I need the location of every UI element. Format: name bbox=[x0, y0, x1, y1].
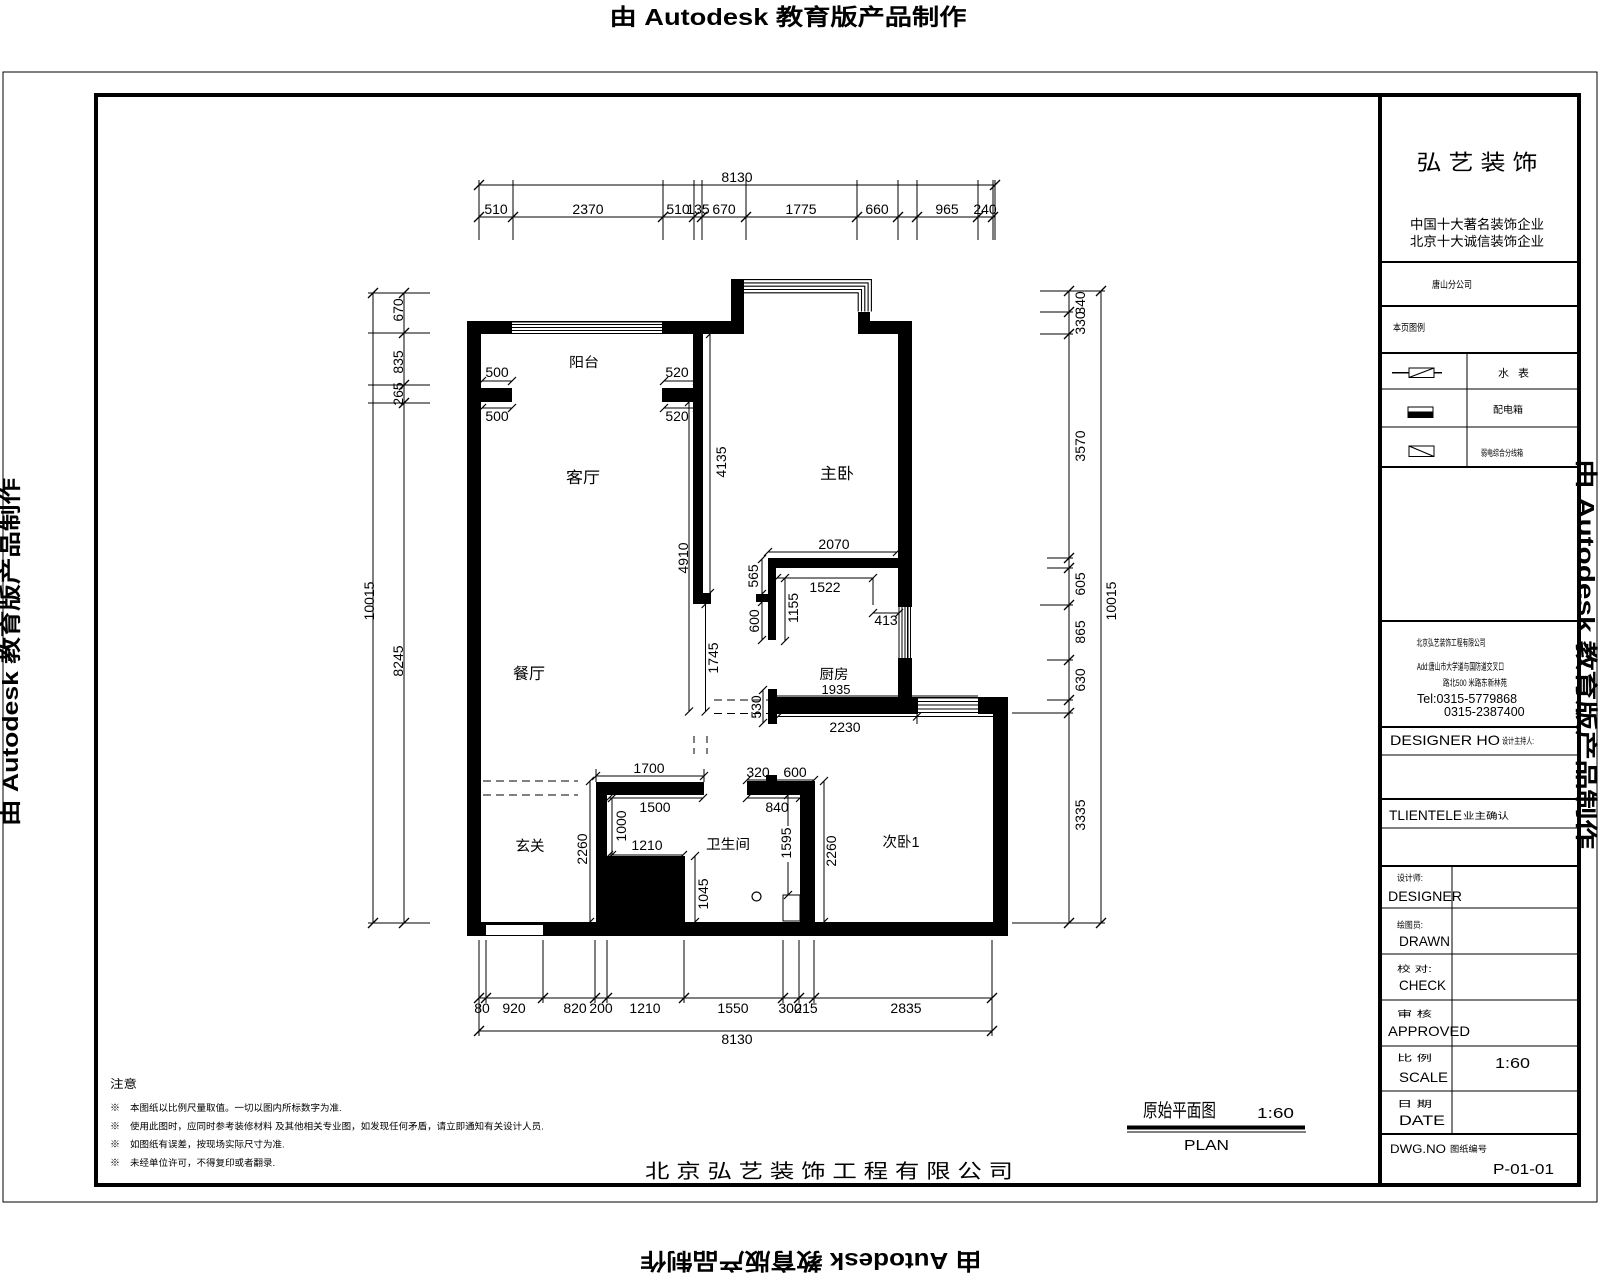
svg-text:413: 413 bbox=[874, 612, 898, 628]
svg-text:※: ※ bbox=[110, 1154, 120, 1169]
svg-text:配电箱: 配电箱 bbox=[1493, 401, 1523, 416]
svg-text:DATE: DATE bbox=[1399, 1112, 1445, 1128]
svg-text:135: 135 bbox=[686, 201, 710, 217]
svg-text:CHECK: CHECK bbox=[1399, 977, 1447, 993]
svg-text:520: 520 bbox=[665, 408, 689, 424]
svg-text:图纸编号: 图纸编号 bbox=[1450, 1142, 1487, 1155]
svg-text:8130: 8130 bbox=[721, 169, 752, 185]
svg-text:原始平面图: 原始平面图 bbox=[1143, 1096, 1216, 1123]
svg-text:审 核: 审 核 bbox=[1397, 1007, 1432, 1020]
svg-text:玄关: 玄关 bbox=[516, 835, 545, 856]
svg-text:330: 330 bbox=[1072, 311, 1088, 335]
svg-text:4910: 4910 bbox=[675, 542, 691, 573]
svg-text:670: 670 bbox=[712, 201, 736, 217]
svg-text:2230: 2230 bbox=[829, 719, 860, 735]
svg-text:1045: 1045 bbox=[695, 878, 711, 909]
svg-text:由 Autodesk 教育版产品制作: 由 Autodesk 教育版产品制作 bbox=[610, 0, 967, 32]
svg-text:唐山分公司: 唐山分公司 bbox=[1432, 276, 1472, 291]
svg-text:主卧: 主卧 bbox=[820, 460, 854, 484]
svg-text:本页图例: 本页图例 bbox=[1393, 319, 1425, 334]
svg-text:820: 820 bbox=[563, 1000, 587, 1016]
svg-text:80: 80 bbox=[474, 1000, 490, 1016]
svg-text:次卧1: 次卧1 bbox=[883, 831, 920, 852]
svg-text:阳台: 阳台 bbox=[569, 352, 599, 372]
svg-text:3570: 3570 bbox=[1072, 430, 1088, 461]
svg-text:1000: 1000 bbox=[613, 810, 629, 841]
svg-text:弘 艺 装 饰: 弘 艺 装 饰 bbox=[1417, 145, 1538, 177]
svg-text:绘图员:: 绘图员: bbox=[1397, 918, 1423, 931]
svg-text:840: 840 bbox=[765, 799, 789, 815]
svg-text:弱电综合分线箱: 弱电综合分线箱 bbox=[1481, 446, 1523, 459]
svg-text:由 Autodesk 教育版产品制作: 由 Autodesk 教育版产品制作 bbox=[0, 478, 25, 826]
svg-text:3335: 3335 bbox=[1072, 799, 1088, 830]
svg-text:注意: 注意 bbox=[110, 1075, 137, 1092]
svg-text:未经单位许可，不得复印或者翻录.: 未经单位许可，不得复印或者翻录. bbox=[130, 1155, 275, 1169]
svg-text:Tel:0315-5779868: Tel:0315-5779868 bbox=[1417, 692, 1517, 706]
svg-text:1210: 1210 bbox=[631, 837, 662, 853]
svg-text:2370: 2370 bbox=[572, 201, 603, 217]
svg-text:10015: 10015 bbox=[361, 581, 377, 620]
svg-text:2260: 2260 bbox=[574, 833, 590, 864]
svg-text:校 对:: 校 对: bbox=[1397, 962, 1432, 975]
svg-text:200: 200 bbox=[589, 1000, 613, 1016]
svg-text:卫生间: 卫生间 bbox=[706, 834, 750, 854]
svg-text:水: 水 bbox=[1498, 365, 1509, 381]
svg-text:日 期: 日 期 bbox=[1397, 1097, 1432, 1110]
svg-text:565: 565 bbox=[745, 564, 761, 588]
svg-text:PLAN: PLAN bbox=[1184, 1137, 1229, 1154]
svg-text:1522: 1522 bbox=[809, 579, 840, 595]
svg-text:865: 865 bbox=[1072, 620, 1088, 644]
svg-text:DWG.NO: DWG.NO bbox=[1390, 1142, 1446, 1156]
svg-text:设计师:: 设计师: bbox=[1397, 871, 1423, 884]
svg-text:客厅: 客厅 bbox=[566, 464, 600, 488]
svg-text:1935: 1935 bbox=[822, 682, 851, 697]
svg-text:路北500 米路东新林苑: 路北500 米路东新林苑 bbox=[1443, 675, 1507, 689]
svg-text:北京十大诚信装饰企业: 北京十大诚信装饰企业 bbox=[1410, 230, 1544, 250]
svg-text:表: 表 bbox=[1518, 365, 1529, 381]
svg-text:500: 500 bbox=[485, 408, 509, 424]
svg-text:265: 265 bbox=[390, 382, 406, 406]
svg-text:2260: 2260 bbox=[823, 835, 839, 866]
svg-text:DESIGNER HO: DESIGNER HO bbox=[1390, 732, 1500, 748]
svg-text:※: ※ bbox=[110, 1117, 120, 1132]
svg-text:北 京 弘 艺 装 饰 工 程 有 限 公 司: 北 京 弘 艺 装 饰 工 程 有 限 公 司 bbox=[645, 1155, 1013, 1184]
svg-text:厨房: 厨房 bbox=[820, 664, 849, 684]
svg-text:业主确认: 业主确认 bbox=[1463, 808, 1510, 822]
svg-text:※: ※ bbox=[110, 1099, 120, 1114]
svg-text:1745: 1745 bbox=[705, 642, 721, 673]
svg-text:605: 605 bbox=[1072, 572, 1088, 596]
svg-text:P-01-01: P-01-01 bbox=[1493, 1161, 1554, 1178]
svg-text:670: 670 bbox=[390, 298, 406, 322]
svg-text:630: 630 bbox=[1072, 668, 1088, 692]
svg-text:8130: 8130 bbox=[721, 1031, 752, 1047]
svg-text:965: 965 bbox=[935, 201, 959, 217]
svg-text:使用此图时，应同时参考装修材料 及其他相关专业图，如发现任何: 使用此图时，应同时参考装修材料 及其他相关专业图，如发现任何矛盾，请立即通知有关… bbox=[130, 1118, 544, 1132]
svg-text:510: 510 bbox=[484, 201, 508, 217]
svg-text:1500: 1500 bbox=[639, 799, 670, 815]
svg-text:SCALE: SCALE bbox=[1399, 1069, 1448, 1085]
svg-text:0315-2387400: 0315-2387400 bbox=[1444, 705, 1525, 719]
svg-text:北京弘艺装饰工程有限公司: 北京弘艺装饰工程有限公司 bbox=[1417, 635, 1486, 649]
svg-text:1:60: 1:60 bbox=[1257, 1105, 1294, 1122]
svg-text:320: 320 bbox=[746, 764, 770, 780]
svg-text:如图纸有误差，按现场实际尺寸为准.: 如图纸有误差，按现场实际尺寸为准. bbox=[130, 1137, 285, 1151]
svg-text:600: 600 bbox=[783, 764, 807, 780]
svg-text:1155: 1155 bbox=[785, 593, 801, 623]
svg-text:※: ※ bbox=[110, 1136, 120, 1151]
svg-text:8245: 8245 bbox=[390, 645, 406, 676]
svg-text:2070: 2070 bbox=[818, 536, 849, 552]
svg-text:DRAWN: DRAWN bbox=[1399, 933, 1450, 949]
svg-text:APPROVED: APPROVED bbox=[1388, 1023, 1470, 1039]
svg-text:DESIGNER: DESIGNER bbox=[1388, 888, 1462, 904]
svg-text:2835: 2835 bbox=[890, 1000, 921, 1016]
svg-text:600: 600 bbox=[746, 609, 762, 633]
svg-text:530: 530 bbox=[748, 695, 764, 719]
svg-text:由 Autodesk 教育版产品制作: 由 Autodesk 教育版产品制作 bbox=[641, 1246, 982, 1280]
svg-text:1700: 1700 bbox=[633, 760, 664, 776]
svg-text:1:60: 1:60 bbox=[1495, 1055, 1530, 1072]
svg-text:340: 340 bbox=[1072, 291, 1088, 315]
svg-text:215: 215 bbox=[794, 1000, 818, 1016]
svg-text:4135: 4135 bbox=[713, 446, 729, 477]
svg-text:660: 660 bbox=[865, 201, 889, 217]
svg-text:1210: 1210 bbox=[629, 1000, 660, 1016]
svg-text:1775: 1775 bbox=[785, 201, 816, 217]
svg-text:835: 835 bbox=[390, 350, 406, 374]
svg-text:本图纸以比例尺量取值。一切以图内所标数字为准.: 本图纸以比例尺量取值。一切以图内所标数字为准. bbox=[130, 1100, 342, 1114]
svg-text:520: 520 bbox=[665, 364, 689, 380]
svg-text:240: 240 bbox=[973, 201, 997, 217]
svg-text:10015: 10015 bbox=[1103, 581, 1119, 620]
svg-text:920: 920 bbox=[502, 1000, 526, 1016]
svg-text:TLIENTELE: TLIENTELE bbox=[1389, 807, 1462, 823]
svg-text:1550: 1550 bbox=[717, 1000, 748, 1016]
svg-text:500: 500 bbox=[485, 364, 509, 380]
svg-text:Add:唐山市大学道与国防道交叉口: Add:唐山市大学道与国防道交叉口 bbox=[1417, 658, 1504, 673]
svg-text:由 Autodesk 教育版产品制作: 由 Autodesk 教育版产品制作 bbox=[1571, 459, 1600, 849]
svg-text:比 例: 比 例 bbox=[1397, 1051, 1432, 1064]
svg-text:1595: 1595 bbox=[778, 827, 794, 858]
svg-text:设计主持人:: 设计主持人: bbox=[1502, 734, 1534, 747]
svg-text:餐厅: 餐厅 bbox=[513, 660, 545, 684]
